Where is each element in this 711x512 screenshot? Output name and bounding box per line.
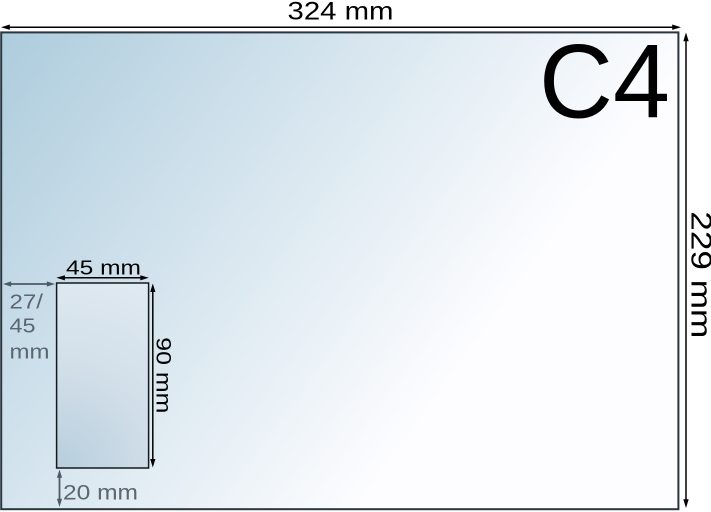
svg-text:C4: C4 [539,24,670,141]
svg-text:90 mm: 90 mm [151,337,175,413]
svg-text:20 mm: 20 mm [63,480,138,504]
svg-text:mm: mm [10,340,50,363]
svg-text:229 mm: 229 mm [685,211,711,338]
svg-text:45 mm: 45 mm [66,256,141,279]
svg-text:45: 45 [10,315,36,338]
svg-text:27/: 27/ [10,290,44,313]
svg-text:324 mm: 324 mm [288,0,394,26]
